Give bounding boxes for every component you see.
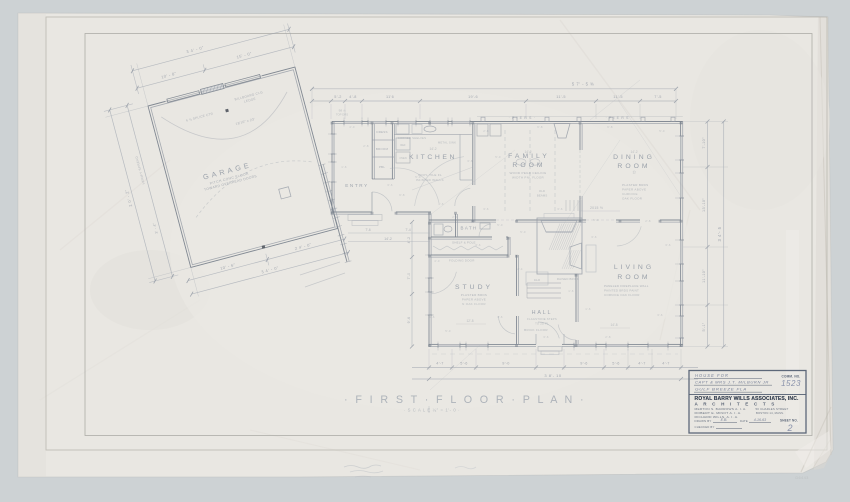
svg-text:6'-8: 6'-8 [607,125,613,129]
svg-text:OVEN: OVEN [399,156,406,160]
svg-text:11'-5: 11'-5 [613,95,623,99]
svg-text:LIVING: LIVING [614,264,654,271]
svg-text:PAPER ABOVE: PAPER ABOVE [622,188,646,192]
svg-text:9'-6: 9'-6 [407,317,411,324]
svg-text:14'-8: 14'-8 [611,323,618,327]
svg-text:DATE: DATE [740,419,748,423]
svg-text:· S C A L E ¼″ = 1'- 0 ·: · S C A L E ¼″ = 1'- 0 · [404,408,460,413]
svg-text:5'-2: 5'-2 [334,95,341,99]
svg-text:CLO: CLO [534,278,541,282]
svg-text:9'-0: 9'-0 [502,362,509,366]
svg-text:5'-0: 5'-0 [445,329,451,333]
svg-text:A R C H I T E C T S: A R C H I T E C T S [695,401,777,406]
svg-text:4'-0: 4'-0 [434,259,440,263]
svg-text:PAPER ABOVE: PAPER ABOVE [462,298,486,302]
svg-text:ROOM: ROOM [512,162,545,169]
svg-text:7'-0: 7'-0 [407,273,411,280]
svg-text:1'-6: 1'-6 [341,165,347,169]
svg-text:4'-0: 4'-0 [349,125,355,129]
svg-text:4'-7: 4'-7 [662,362,669,366]
svg-text:4'-2: 4'-2 [407,237,411,244]
svg-text:2: 2 [786,423,792,433]
svg-text:14'-2: 14'-2 [430,147,437,151]
svg-text:3'-6: 3'-6 [591,235,597,239]
svg-text:SHEET NO.: SHEET NO. [780,418,798,422]
svg-text:OAK FLOOR: OAK FLOOR [622,197,643,201]
svg-text:3'-6: 3'-6 [467,159,473,163]
svg-text:4'-8: 4'-8 [349,95,356,99]
svg-text:2'-8: 2'-8 [483,129,489,133]
svg-text:KITCHEN: KITCHEN [409,154,457,161]
svg-text:FAMILY: FAMILY [508,153,550,160]
svg-text:N OAK FLOOR: N OAK FLOOR [462,302,486,306]
svg-text:· F I R S T · F L O O R ·: · F I R S T · F L O O R · P L A N · [344,394,586,406]
svg-text:6'-8: 6'-8 [537,125,543,129]
svg-text:CAPT & MRS J.T. MILBURN JR: CAPT & MRS J.T. MILBURN JR [695,380,769,385]
svg-text:BRICK FLOOR: BRICK FLOOR [524,328,548,332]
svg-text:2015 ½: 2015 ½ [590,206,603,210]
svg-text:SHELF & POLE: SHELF & POLE [452,241,476,245]
svg-text:COMM. NO.: COMM. NO. [782,375,801,379]
svg-text:2'-8: 2'-8 [363,144,369,148]
svg-text:3'-6: 3'-6 [543,335,549,339]
svg-text:DRAWN BY: DRAWN BY [695,419,712,423]
svg-text:RAISED BRICK: RAISED BRICK [557,277,579,281]
svg-text:9'-6: 9'-6 [580,362,587,366]
svg-text:3'-6: 3'-6 [483,207,489,211]
svg-text:7'-5: 7'-5 [654,95,661,99]
svg-text:3 4'- 5: 3 4'- 5 [717,226,722,241]
svg-text:ENTRY: ENTRY [345,183,369,188]
svg-text:3'-6: 3'-6 [557,207,563,211]
svg-text:HOUSE FOR: HOUSE FOR [695,373,729,378]
svg-text:5'-0: 5'-0 [415,175,421,179]
svg-text:D6443: D6443 [795,475,809,480]
svg-text:19'-6: 19'-6 [468,95,478,99]
svg-text:3'-6: 3'-6 [497,315,503,319]
svg-text:TOP DRS: TOP DRS [336,113,348,117]
svg-text:· P I E R S ·: · P I E R S · [606,116,633,120]
svg-text:PAINTED BRDS PAINT: PAINTED BRDS PAINT [604,289,639,293]
svg-text:E.B.: E.B. [721,418,728,422]
svg-text:BOSTON 14, MASS.: BOSTON 14, MASS. [756,411,784,415]
svg-text:BATH: BATH [461,226,478,231]
svg-text:11'6: 11'6 [386,95,394,99]
svg-text:STUDY: STUDY [455,284,493,291]
svg-text:3'-6: 3'-6 [657,313,663,317]
svg-text:14'-2: 14'-2 [525,150,532,154]
svg-text:1'-6: 1'-6 [585,307,591,311]
svg-text:FOLDING DOOR: FOLDING DOOR [449,259,475,263]
svg-text:11'-10": 11'-10" [702,269,706,283]
svg-text:BEAMS: BEAMS [537,194,548,198]
svg-text:BROOM: BROOM [376,147,389,151]
svg-text:WIDTH PNL FLOOR: WIDTH PNL FLOOR [512,176,545,180]
svg-text:TO 2D FL: TO 2D FL [535,322,549,326]
svg-text:CHECKED BY: CHECKED BY [695,425,715,429]
svg-text:METAL SINK: METAL SINK [438,141,456,145]
svg-text:REF: REF [400,143,406,147]
svg-text:1523: 1523 [781,379,801,388]
svg-text:3'-6: 3'-6 [387,183,393,187]
svg-text:6'-8: 6'-8 [399,193,405,197]
svg-text:5'-6: 5'-6 [612,362,619,366]
svg-text:4'-7: 4'-7 [638,362,645,366]
svg-text:CORNICE OAK FLOOR: CORNICE OAK FLOOR [604,293,640,297]
svg-text:7'-6: 7'-6 [365,228,370,232]
svg-text:FLAGSTONE STEPS: FLAGSTONE STEPS [527,317,557,321]
svg-text:3 8'- 10: 3 8'- 10 [544,373,561,378]
svg-text:OLD: OLD [539,189,546,193]
svg-text:12'-8: 12'-8 [467,319,474,323]
svg-text:CHRNICE: CHRNICE [622,192,638,196]
svg-text:DRESS: DRESS [376,130,387,134]
svg-text:2'-8: 2'-8 [645,219,651,223]
svg-text:5'-0: 5'-0 [593,218,599,222]
svg-text:2'-4: 2'-4 [452,215,458,219]
svg-text:11'-5: 11'-5 [556,95,566,99]
svg-text:13'-10": 13'-10" [702,198,706,212]
svg-text:4-16-63: 4-16-63 [754,418,766,422]
svg-text:PBL: PBL [379,165,385,169]
svg-text:2'-4: 2'-4 [517,267,523,271]
svg-text:3'-6: 3'-6 [475,243,481,247]
svg-text:5'-0: 5'-0 [497,223,503,227]
svg-text:2'-8: 2'-8 [605,335,611,339]
svg-text:WOOD PEGD CEILING: WOOD PEGD CEILING [510,171,547,175]
svg-text:ROOM: ROOM [617,274,650,281]
svg-text:GULF BREEZE FLA: GULF BREEZE FLA [695,387,747,392]
svg-text:7'-10": 7'-10" [702,137,706,149]
svg-text:5'-6: 5'-6 [460,362,467,366]
svg-text:5 7' - 5 ⅜: 5 7' - 5 ⅜ [572,82,594,87]
svg-text:DINING: DINING [613,154,655,161]
svg-text:PLASTER BRDS: PLASTER BRDS [622,183,648,187]
svg-text:5'-0: 5'-0 [495,155,501,159]
svg-text:· P I E R S ·: · P I E R S · [509,116,536,120]
svg-text:5'-1": 5'-1" [702,322,706,331]
svg-text:5'-0: 5'-0 [659,129,665,133]
svg-text:PANELED FIREPLACE WALL: PANELED FIREPLACE WALL [604,284,649,288]
svg-text:4'-7: 4'-7 [436,362,443,366]
svg-text:1'-6: 1'-6 [429,315,435,319]
svg-text:3'-6: 3'-6 [438,202,444,206]
svg-text:Ω: Ω [632,170,635,175]
svg-text:PLASTER BRDS: PLASTER BRDS [461,293,487,297]
svg-text:7'-4: 7'-4 [405,228,410,232]
svg-text:1'-6: 1'-6 [568,289,574,293]
svg-text:HALL: HALL [532,310,553,316]
svg-text:5'-0: 5'-0 [520,230,526,234]
svg-text:14'-2: 14'-2 [631,150,638,154]
svg-text:14'-2: 14'-2 [384,237,392,241]
svg-text:3'-6: 3'-6 [665,243,671,247]
